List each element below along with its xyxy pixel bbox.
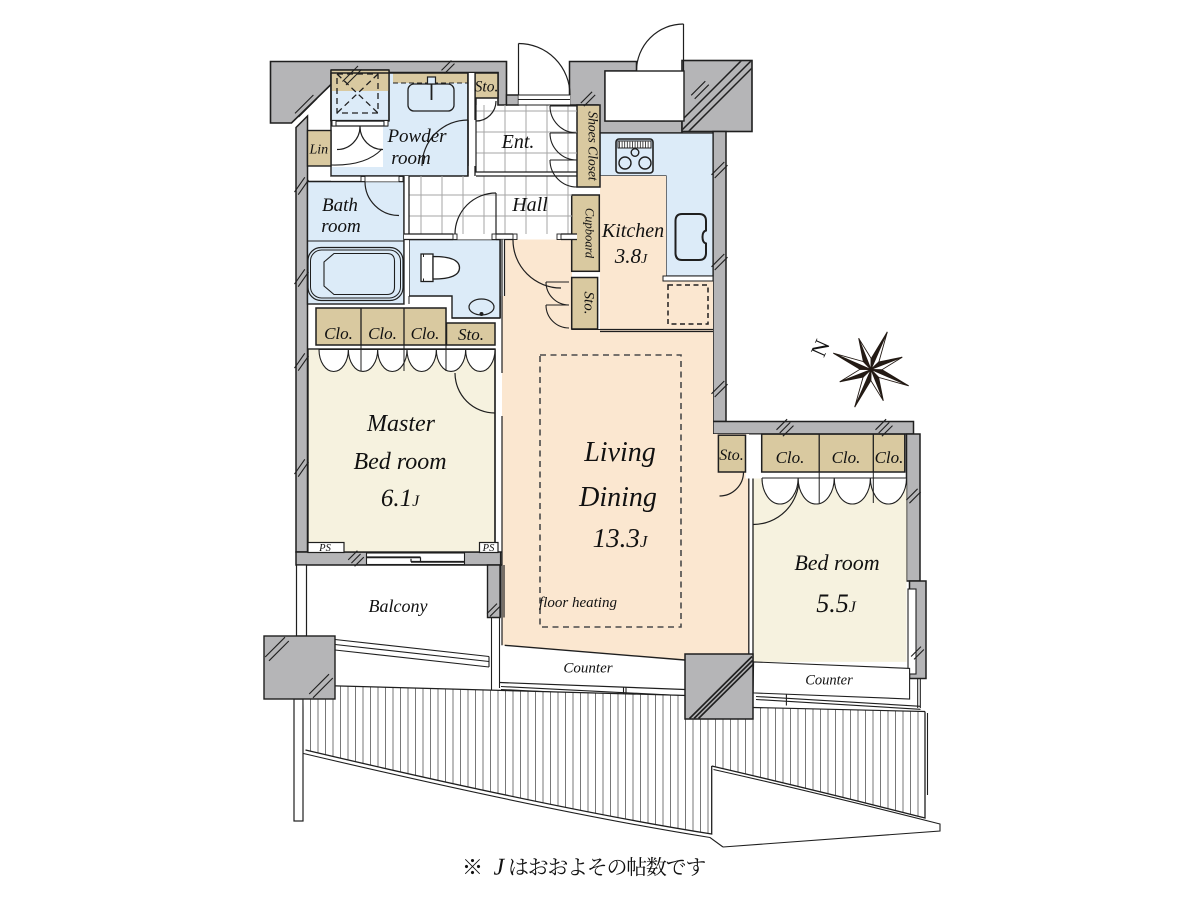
svg-text:Hall: Hall	[511, 194, 548, 216]
svg-text:Clo.: Clo.	[832, 448, 861, 467]
svg-text:room: room	[321, 216, 360, 237]
svg-text:PS: PS	[482, 543, 495, 554]
svg-text:room: room	[391, 148, 430, 169]
svg-text:Powder: Powder	[386, 126, 447, 147]
svg-text:Counter: Counter	[563, 661, 612, 677]
svg-text:Counter: Counter	[805, 673, 853, 689]
svg-text:Clo.: Clo.	[368, 324, 397, 343]
svg-text:Ent.: Ent.	[501, 131, 535, 153]
svg-text:Sto.: Sto.	[581, 292, 597, 315]
svg-text:Master: Master	[366, 411, 436, 437]
svg-text:Kitchen: Kitchen	[601, 220, 664, 242]
svg-text:Sto.: Sto.	[475, 79, 499, 96]
svg-text:Living: Living	[583, 437, 656, 468]
svg-text:Balcony: Balcony	[369, 596, 428, 616]
svg-text:Lin: Lin	[308, 143, 328, 158]
svg-text:Clo.: Clo.	[776, 448, 805, 467]
svg-text:Cupboard: Cupboard	[583, 208, 597, 259]
svg-text:Clo.: Clo.	[411, 324, 440, 343]
svg-text:Dining: Dining	[578, 482, 657, 513]
svg-text:Shoes Closet: Shoes Closet	[586, 111, 601, 182]
svg-text:floor heating: floor heating	[539, 595, 617, 611]
svg-text:Bath: Bath	[322, 195, 358, 216]
svg-text:PS: PS	[318, 543, 331, 554]
svg-text:Clo.: Clo.	[324, 324, 353, 343]
svg-text:Bed room: Bed room	[794, 550, 879, 575]
svg-text:Bed room: Bed room	[353, 449, 446, 475]
svg-text:Sto.: Sto.	[458, 325, 484, 344]
svg-text:Sto.: Sto.	[719, 447, 743, 464]
svg-text:Clo.: Clo.	[875, 448, 904, 467]
